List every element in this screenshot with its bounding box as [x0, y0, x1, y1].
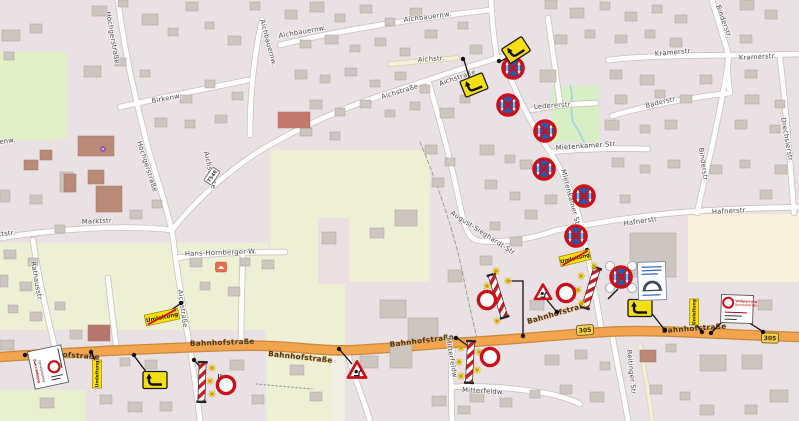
closure-notice-sign: Vollsperrung Bahnhofstraße	[27, 345, 68, 389]
warning-lamp-icon	[473, 366, 481, 374]
fire-station-icon	[216, 262, 227, 272]
street-label: Marktstr.	[82, 216, 114, 226]
no-stopping-sign-icon	[574, 186, 594, 206]
warning-lamp-icon	[493, 317, 501, 325]
warning-lamp-icon	[578, 299, 586, 307]
warning-lamp-icon	[457, 344, 465, 352]
road-closed-sign-icon	[481, 348, 498, 365]
svg-text:Bahnhofstraße: Bahnhofstraße	[735, 303, 757, 308]
no-stopping-zone-icon	[606, 262, 637, 293]
road-closed-sign-icon	[557, 284, 574, 301]
detour-arrow-sign-icon	[143, 372, 167, 389]
route-shield-b305: 305	[576, 324, 594, 335]
bridge-info-sign	[637, 262, 666, 301]
warning-lamp-icon	[206, 377, 214, 385]
road-closed-sign-icon	[217, 376, 234, 393]
warning-lamp-icon	[590, 262, 598, 270]
svg-text:305: 305	[764, 335, 777, 342]
closure-notice-sign: Vollsperrung Bahnhofstraße	[721, 294, 758, 323]
no-stopping-sign-icon	[566, 226, 586, 246]
church-icon	[100, 146, 106, 152]
road-closed-sign-icon	[478, 291, 495, 308]
detour-arrow-sign-icon	[628, 300, 652, 317]
no-stopping-sign-icon	[534, 159, 554, 179]
umleitung-sign: Umleitung	[690, 299, 699, 325]
street-map: Bahnhofstraße Bahnhofstraße Bahnhofstraß…	[0, 0, 799, 421]
warning-lamp-icon	[208, 364, 216, 372]
warning-lamp-icon	[457, 372, 465, 380]
warning-lamp-icon	[577, 272, 585, 280]
warning-lamp-icon	[455, 358, 463, 366]
map-viewport[interactable]: Bahnhofstraße Bahnhofstraße Bahnhofstraß…	[0, 0, 799, 421]
svg-text:Umleitung: Umleitung	[692, 299, 698, 325]
warning-lamp-icon	[492, 267, 500, 275]
warning-lamp-icon	[208, 390, 216, 398]
no-stopping-sign-icon	[535, 121, 555, 141]
route-shield-b305: 305	[761, 333, 778, 344]
svg-text:Umleitung: Umleitung	[95, 361, 101, 388]
warning-lamp-icon	[483, 282, 491, 290]
warning-lamp-icon	[504, 277, 512, 285]
svg-text:305: 305	[579, 327, 592, 335]
umleitung-sign: Umleitung	[93, 360, 102, 388]
no-stopping-sign-icon	[498, 95, 518, 115]
